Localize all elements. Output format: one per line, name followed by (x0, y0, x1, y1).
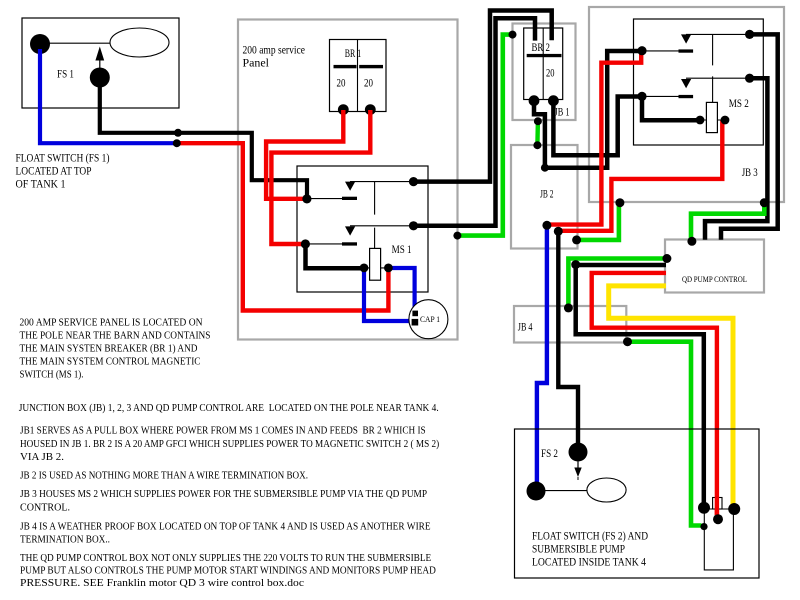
svg-text:JB 2 IS USED AS NOTHING MORE T: JB 2 IS USED AS NOTHING MORE THAN A WIRE… (20, 470, 308, 481)
svg-text:MS 2: MS 2 (729, 97, 749, 110)
svg-text:FLOAT SWITCH (FS 2) AND: FLOAT SWITCH (FS 2) AND (532, 530, 648, 543)
svg-text:200 amp service: 200 amp service (243, 44, 306, 57)
svg-text:JB 4: JB 4 (518, 320, 533, 333)
svg-text:JB 1: JB 1 (555, 106, 570, 119)
svg-text:MS 1: MS 1 (392, 243, 412, 256)
svg-text:JB 3 HOUSES MS 2 WHICH SUPPLIE: JB 3 HOUSES MS 2 WHICH SUPPLIES POWER FO… (20, 489, 427, 500)
svg-text:CAP 1: CAP 1 (420, 314, 440, 324)
svg-text:THE QD PUMP CONTROL BOX NOT ON: THE QD PUMP CONTROL BOX NOT ONLY SUPPLIE… (20, 553, 431, 564)
svg-text:JB1 SERVES AS A PULL BOX WHERE: JB1 SERVES AS A PULL BOX WHERE POWER FRO… (20, 426, 426, 437)
svg-text:JB 3: JB 3 (742, 166, 758, 179)
svg-text:FS 2: FS 2 (541, 447, 558, 460)
svg-text:SWITCH (MS 1).: SWITCH (MS 1). (20, 370, 84, 381)
svg-text:JB 4 IS A WEATHER PROOF BOX LO: JB 4 IS A WEATHER PROOF BOX LOCATED ON T… (20, 521, 431, 532)
svg-text:LOCATED AT TOP: LOCATED AT TOP (16, 164, 92, 177)
svg-text:JUNCTION BOX (JB) 1, 2, 3 AND: JUNCTION BOX (JB) 1, 2, 3 AND QD PUMP CO… (19, 403, 439, 414)
svg-text:PUMP BUT ALSO CONTROLS THE PUM: PUMP BUT ALSO CONTROLS THE PUMP MOTOR ST… (20, 566, 436, 577)
svg-text:200 AMP SERVICE PANEL IS LOCAT: 200 AMP SERVICE PANEL IS LOCATED ON (20, 318, 203, 329)
svg-text:20: 20 (546, 67, 555, 80)
svg-text:CONTROL.: CONTROL. (20, 503, 70, 514)
svg-text:FS 1: FS 1 (57, 68, 74, 81)
svg-text:PRESSURE. SEE Franklin motor Q: PRESSURE. SEE Franklin motor QD 3 wire c… (20, 578, 304, 589)
svg-text:TERMINATION BOX..: TERMINATION BOX.. (20, 535, 110, 546)
svg-text:FLOAT SWITCH (FS 1): FLOAT SWITCH (FS 1) (16, 151, 110, 164)
svg-text:VIA JB 2.: VIA JB 2. (20, 452, 64, 463)
svg-text:LOCATED INSIDE TANK 4: LOCATED INSIDE TANK 4 (532, 556, 646, 569)
svg-text:BR 2: BR 2 (532, 41, 551, 54)
svg-text:THE MAIN SYSTEN BREAKER (BR 1): THE MAIN SYSTEN BREAKER (BR 1) AND (20, 344, 198, 355)
svg-text:HOUSED IN JB 1. BR 2 IS A 20 A: HOUSED IN JB 1. BR 2 IS A 20 AMP GFCI WH… (20, 439, 440, 450)
svg-text:QD PUMP CONTROL: QD PUMP CONTROL (682, 274, 747, 284)
svg-text:OF TANK 1: OF TANK 1 (16, 177, 66, 190)
svg-text:SUBMERSIBLE PUMP: SUBMERSIBLE PUMP (532, 543, 625, 556)
svg-text:THE POLE NEAR THE BARN AND CON: THE POLE NEAR THE BARN AND CONTAINS (20, 331, 211, 342)
svg-text:20: 20 (337, 77, 346, 90)
svg-text:THE MAIN SYSTEM CONTROL MAGNET: THE MAIN SYSTEM CONTROL MAGNETIC (20, 357, 201, 368)
svg-text:BR 1: BR 1 (345, 47, 362, 60)
svg-text:20: 20 (364, 77, 373, 90)
svg-text:Panel: Panel (243, 56, 270, 69)
svg-text:JB 2: JB 2 (540, 187, 554, 200)
